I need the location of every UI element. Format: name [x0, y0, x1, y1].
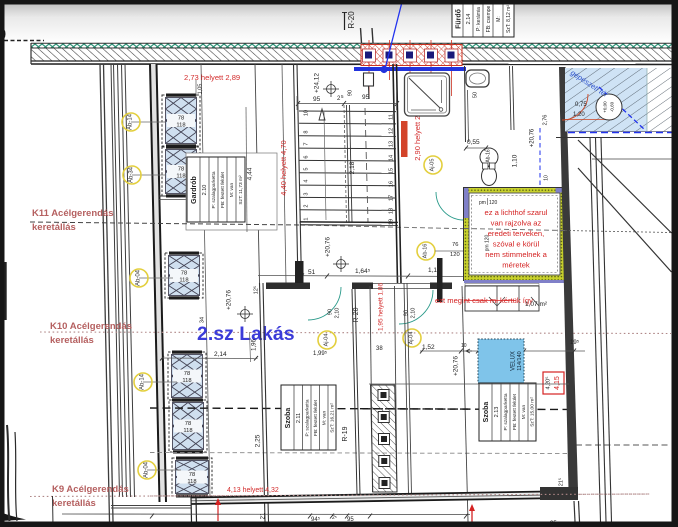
- svg-text:nem stimmelnek a: nem stimmelnek a: [485, 250, 547, 259]
- svg-text:2,18: 2,18: [349, 161, 356, 174]
- svg-text:1,10: 1,10: [512, 154, 519, 167]
- svg-text:K11 Acélgerendás: K11 Acélgerendás: [32, 208, 114, 219]
- svg-text:Ab-16: Ab-16: [485, 149, 491, 163]
- svg-text:FB: csempe: FB: csempe: [486, 5, 492, 32]
- svg-text:78: 78: [178, 167, 184, 173]
- svg-text:M: van: M: van: [521, 404, 527, 419]
- svg-text:10: 10: [543, 175, 549, 181]
- svg-text:1,64⁵: 1,64⁵: [355, 268, 371, 275]
- svg-text:P: szalagparketta: P: szalagparketta: [211, 171, 217, 208]
- svg-text:P: szalagparketta: P: szalagparketta: [304, 399, 310, 436]
- svg-text:13: 13: [388, 141, 394, 147]
- svg-text:K9 Acélgerendás: K9 Acélgerendás: [52, 484, 129, 495]
- svg-text:K10 Acélgerendás: K10 Acélgerendás: [50, 321, 132, 332]
- svg-text:16: 16: [388, 181, 394, 187]
- svg-text:2,76: 2,76: [542, 115, 548, 126]
- svg-text:eredeti terveken,: eredeti terveken,: [488, 229, 545, 238]
- svg-text:pm: pm: [479, 200, 486, 206]
- svg-text:2⁵: 2⁵: [332, 515, 337, 521]
- svg-text:2: 2: [303, 204, 309, 207]
- svg-text:keretállás: keretállás: [32, 222, 76, 233]
- svg-text:1,52: 1,52: [422, 344, 435, 351]
- svg-text:7: 7: [303, 142, 309, 145]
- svg-text:5: 5: [303, 167, 309, 170]
- svg-text:2.sz Lakás: 2.sz Lakás: [197, 323, 295, 345]
- svg-text:FB: festett felület: FB: festett felület: [220, 171, 226, 208]
- svg-text:17: 17: [388, 195, 394, 201]
- svg-text:78: 78: [185, 421, 191, 427]
- svg-text:+20,76: +20,76: [530, 128, 536, 147]
- svg-text:34: 34: [199, 317, 205, 323]
- svg-text:12⁵: 12⁵: [252, 286, 259, 294]
- svg-text:+24,12: +24,12: [314, 73, 321, 93]
- svg-text:van rajzolva az: van rajzolva az: [491, 219, 542, 228]
- svg-text:15: 15: [388, 168, 394, 174]
- svg-text:+20,76: +20,76: [453, 356, 460, 376]
- svg-text:78: 78: [184, 371, 190, 377]
- svg-text:FB: festett felület: FB: festett felület: [512, 393, 518, 430]
- svg-text:ez a lichthof szarul: ez a lichthof szarul: [485, 208, 548, 217]
- svg-text:méretek: méretek: [502, 261, 530, 270]
- svg-text:4,15: 4,15: [554, 376, 561, 390]
- svg-text:Ab-14: Ab-14: [128, 113, 134, 130]
- svg-text:Ab-16: Ab-16: [422, 244, 428, 259]
- svg-text:8: 8: [303, 130, 309, 133]
- svg-text:120: 120: [450, 252, 460, 258]
- svg-text:78: 78: [178, 116, 184, 122]
- svg-text:78: 78: [181, 271, 187, 277]
- svg-text:SzT: 15,00 m²: SzT: 15,00 m²: [529, 397, 535, 427]
- svg-text:1,20: 1,20: [573, 112, 585, 118]
- svg-text:118: 118: [179, 277, 188, 283]
- svg-text:2,73 helyett 2,89: 2,73 helyett 2,89: [184, 73, 240, 82]
- svg-text:R-20: R-20: [347, 11, 356, 29]
- svg-text:90: 90: [347, 90, 353, 96]
- svg-text:3: 3: [303, 192, 309, 195]
- svg-text:2,10: 2,10: [410, 308, 416, 319]
- svg-text:pm 120: pm 120: [484, 234, 490, 251]
- svg-text:2.13: 2.13: [494, 407, 500, 418]
- svg-text:1,95 helyett 1,86: 1,95 helyett 1,86: [378, 283, 385, 331]
- svg-text:6: 6: [303, 155, 309, 158]
- svg-text:Ab-14: Ab-14: [140, 373, 146, 390]
- svg-text:38: 38: [376, 346, 383, 352]
- svg-text:Ab-04: Ab-04: [136, 269, 142, 286]
- svg-text:Ab-34: Ab-34: [129, 166, 135, 183]
- svg-text:21⁵: 21⁵: [557, 478, 564, 486]
- svg-text:+0,00: +0,00: [603, 101, 608, 113]
- svg-text:Fürdő: Fürdő: [455, 9, 462, 29]
- svg-text:Gardrób: Gardrób: [191, 176, 198, 204]
- svg-text:12: 12: [388, 128, 394, 134]
- svg-text:+20,76: +20,76: [226, 290, 233, 310]
- svg-text:95: 95: [313, 96, 321, 103]
- svg-text:Aj-05: Aj-05: [429, 159, 435, 172]
- svg-text:50: 50: [472, 92, 478, 98]
- svg-text:szóval e körül: szóval e körül: [493, 240, 540, 249]
- svg-text:4,13 helyett 4,32: 4,13 helyett 4,32: [227, 487, 279, 494]
- svg-text:M:: M:: [496, 16, 502, 22]
- svg-text:1,07 m²: 1,07 m²: [525, 301, 548, 308]
- svg-text:4,40 helyett 4,70: 4,40 helyett 4,70: [279, 140, 288, 195]
- svg-text:SzT: 16,21 m²: SzT: 16,21 m²: [329, 403, 335, 433]
- svg-text:19⁵: 19⁵: [570, 339, 580, 346]
- svg-text:120: 120: [489, 200, 498, 206]
- svg-text:118: 118: [182, 378, 191, 384]
- svg-text:4,44: 4,44: [247, 167, 254, 180]
- svg-text:4,20⁵: 4,20⁵: [544, 377, 551, 390]
- svg-text:2,25: 2,25: [255, 434, 262, 447]
- svg-text:11: 11: [388, 114, 394, 120]
- svg-text:keretállás: keretállás: [52, 498, 96, 509]
- svg-text:1,05: 1,05: [197, 84, 203, 95]
- svg-text:Aj-04: Aj-04: [408, 332, 414, 345]
- svg-text:M: van: M: van: [321, 410, 327, 425]
- svg-text:2.11: 2.11: [296, 413, 302, 423]
- svg-text:1: 1: [303, 217, 309, 220]
- svg-text:118: 118: [187, 479, 196, 485]
- svg-text:1,96: 1,96: [252, 339, 258, 351]
- svg-text:0,55: 0,55: [467, 139, 480, 146]
- svg-text:Szoba: Szoba: [285, 408, 292, 429]
- svg-text:P: szalagparketta: P: szalagparketta: [503, 393, 509, 430]
- svg-text:1,99⁵: 1,99⁵: [313, 350, 328, 357]
- svg-text:+20,76: +20,76: [325, 237, 332, 257]
- svg-text:2,10: 2,10: [334, 308, 340, 319]
- svg-text:51: 51: [308, 269, 316, 276]
- svg-text:keretállás: keretállás: [50, 335, 94, 346]
- svg-text:0,75: 0,75: [575, 102, 587, 108]
- svg-text:21: 21: [261, 512, 267, 519]
- svg-text:Szoba: Szoba: [483, 402, 490, 423]
- svg-text:4: 4: [303, 179, 309, 182]
- svg-text:FB: festett felület: FB: festett felület: [313, 399, 319, 436]
- svg-text:14: 14: [388, 155, 394, 161]
- svg-text:R-19: R-19: [342, 426, 349, 441]
- svg-text:10: 10: [303, 110, 309, 116]
- svg-text:118: 118: [176, 122, 185, 128]
- svg-text:90: 90: [327, 309, 333, 315]
- svg-text:Aj-04: Aj-04: [323, 334, 329, 347]
- svg-text:P: kerámia: P: kerámia: [476, 7, 482, 31]
- svg-text:18: 18: [388, 208, 394, 214]
- svg-text:-0,60: -0,60: [610, 101, 615, 112]
- svg-text:Ab-04: Ab-04: [144, 461, 150, 478]
- svg-text:SzT: 8,12 m²: SzT: 8,12 m²: [506, 5, 512, 33]
- svg-text:118: 118: [183, 428, 192, 434]
- svg-text:118: 118: [176, 173, 185, 179]
- svg-text:114/140: 114/140: [517, 351, 523, 370]
- svg-text:SzT: 11,73 m²: SzT: 11,73 m²: [238, 175, 244, 205]
- svg-text:2,14: 2,14: [214, 351, 227, 358]
- svg-text:R-20: R-20: [353, 307, 360, 322]
- svg-text:2.14: 2.14: [466, 14, 472, 25]
- svg-text:M: van: M: van: [229, 182, 235, 197]
- svg-text:76: 76: [452, 242, 458, 248]
- svg-text:VELUX: VELUX: [511, 351, 517, 371]
- svg-text:78: 78: [189, 472, 195, 478]
- svg-text:2.10: 2.10: [202, 185, 208, 196]
